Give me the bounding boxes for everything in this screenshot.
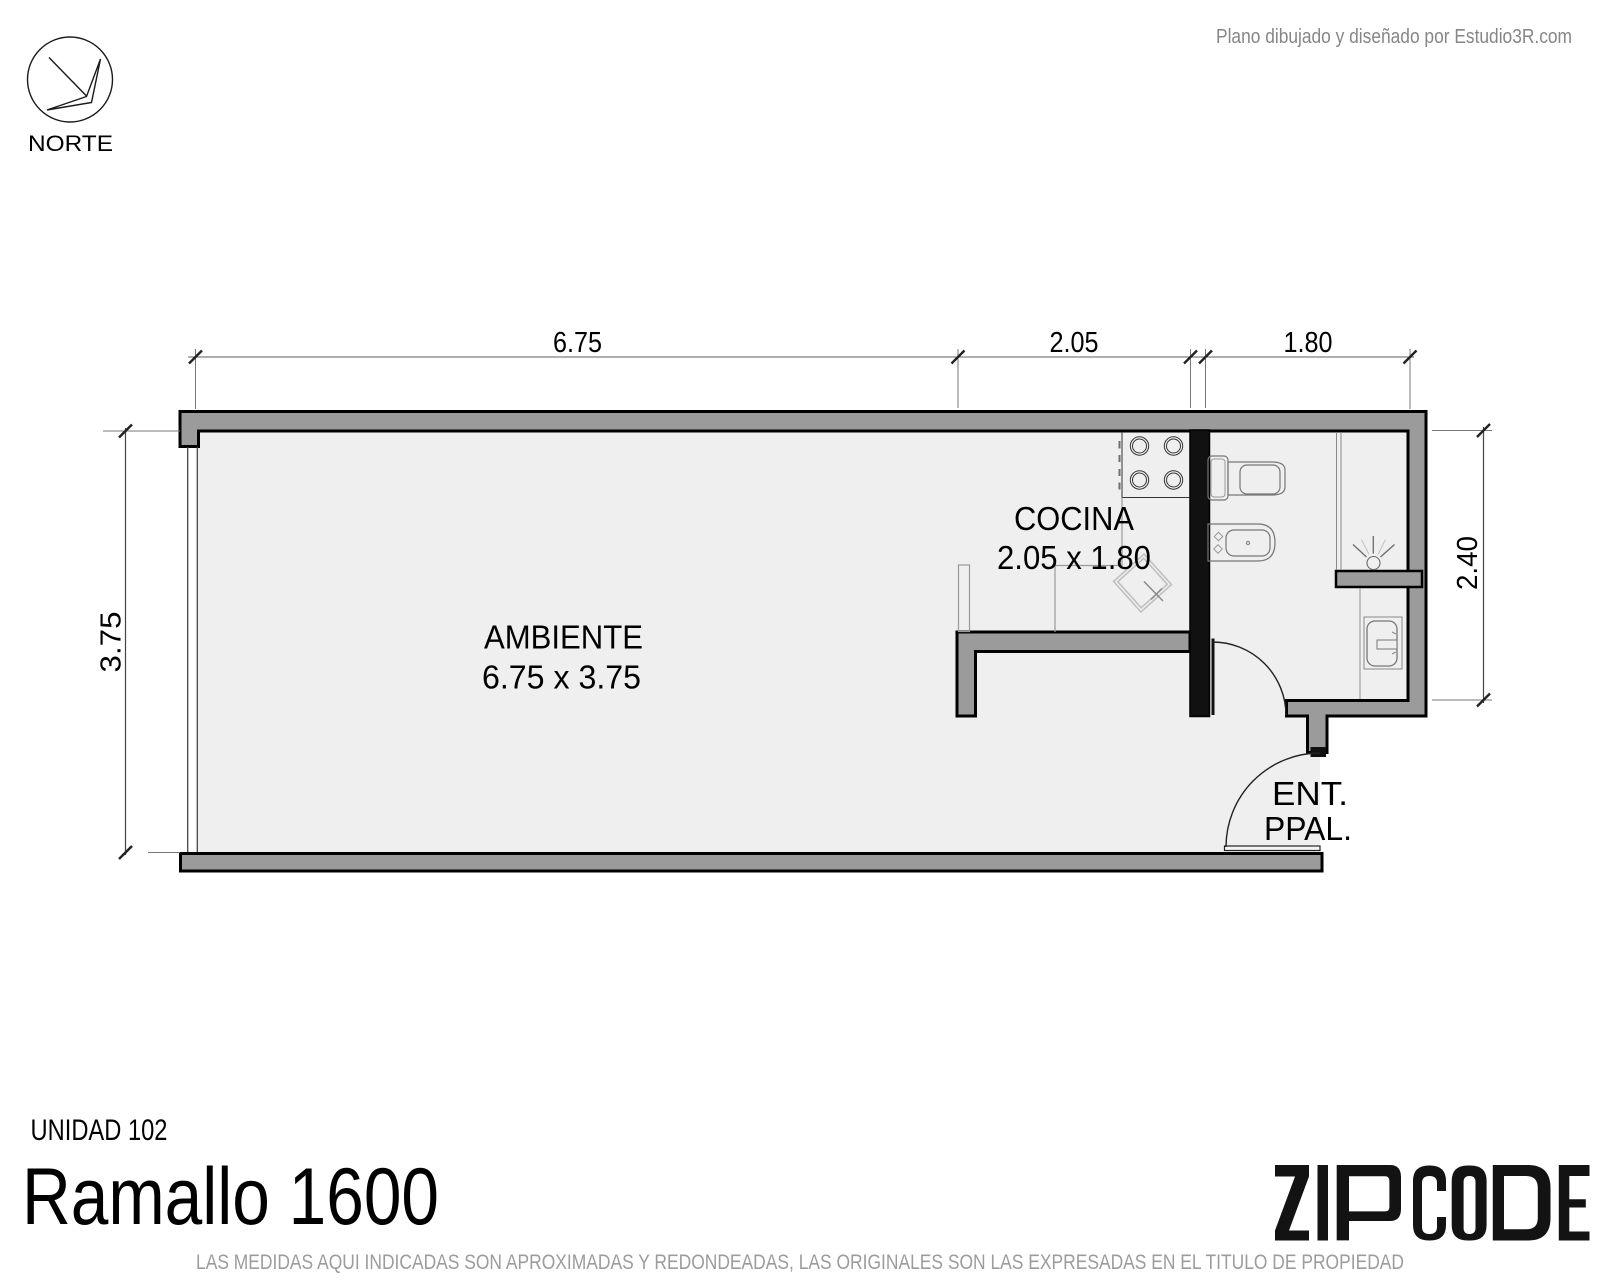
- svg-text:6.75 x 3.75: 6.75 x 3.75: [482, 660, 641, 697]
- svg-text:Ramallo 1600: Ramallo 1600: [22, 1152, 439, 1242]
- svg-text:ENT.: ENT.: [1272, 775, 1348, 812]
- svg-text:2.05: 2.05: [1050, 327, 1099, 359]
- svg-text:UNIDAD 102: UNIDAD 102: [31, 1114, 168, 1147]
- svg-text:NORTE: NORTE: [28, 131, 113, 156]
- svg-text:PPAL.: PPAL.: [1264, 810, 1352, 847]
- svg-text:2.05 x 1.80: 2.05 x 1.80: [997, 540, 1151, 577]
- svg-text:AMBIENTE: AMBIENTE: [484, 620, 643, 657]
- svg-text:LAS MEDIDAS AQUI INDICADAS SON: LAS MEDIDAS AQUI INDICADAS SON APROXIMAD…: [196, 1251, 1404, 1274]
- svg-text:1.80: 1.80: [1284, 327, 1333, 359]
- svg-text:2.40: 2.40: [1452, 536, 1484, 590]
- svg-text:Plano dibujado y diseñado por: Plano dibujado y diseñado por Estudio3R.…: [1216, 26, 1572, 48]
- svg-text:COCINA: COCINA: [1014, 501, 1135, 538]
- svg-text:3.75: 3.75: [96, 612, 128, 673]
- svg-text:6.75: 6.75: [553, 327, 602, 359]
